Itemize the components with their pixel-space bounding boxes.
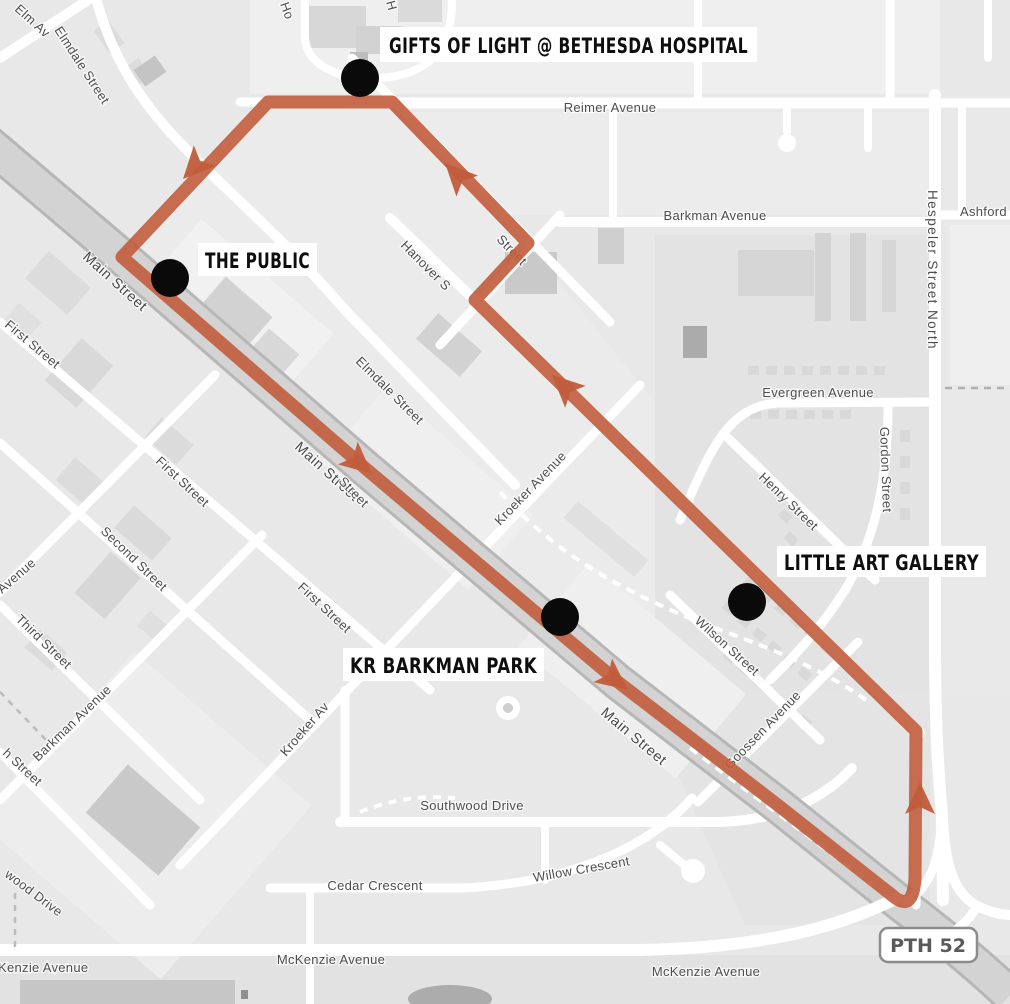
street-label-mckenzie-c: McKenzie Avenue bbox=[277, 952, 385, 967]
street-label-ashford: Ashford bbox=[960, 204, 1007, 219]
highway-shield: PTH 52 bbox=[880, 928, 977, 962]
street-label-mckenzie-r: McKenzie Avenue bbox=[652, 964, 760, 979]
poi-label-gifts-of-light: GIFTS OF LIGHT @ BETHESDA HOSPITAL bbox=[389, 34, 748, 58]
poi-label-little-art-gallery: LITTLE ART GALLERY bbox=[784, 551, 979, 575]
street-label-cedar: Cedar Crescent bbox=[327, 878, 422, 893]
street-label-gordon: Gordon Street bbox=[877, 427, 895, 513]
street-label-mckenzie-l: Kenzie Avenue bbox=[0, 960, 88, 975]
route-map: Reimer Avenue Barkman Avenue Ashford Hes… bbox=[0, 0, 1010, 1004]
poi-label-the-public: THE PUBLIC bbox=[205, 249, 310, 273]
street-label-barkman-n: Barkman Avenue bbox=[664, 208, 767, 223]
poi-marker-little-art-gallery bbox=[728, 583, 766, 621]
map-canvas: Reimer Avenue Barkman Avenue Ashford Hes… bbox=[0, 0, 1010, 1004]
poi-marker-the-public bbox=[151, 259, 189, 297]
street-label-hespeler: Hespeler Street North bbox=[925, 190, 940, 350]
highway-shield-label: PTH 52 bbox=[890, 935, 966, 957]
street-label-southwood: Southwood Drive bbox=[420, 798, 524, 813]
poi-marker-kr-barkman-park bbox=[541, 598, 579, 636]
street-label-evergreen: Evergreen Avenue bbox=[762, 385, 874, 400]
poi-marker-gifts-of-light bbox=[341, 59, 379, 97]
poi-label-kr-barkman-park: KR BARKMAN PARK bbox=[350, 654, 537, 678]
street-label-reimer: Reimer Avenue bbox=[564, 100, 657, 115]
